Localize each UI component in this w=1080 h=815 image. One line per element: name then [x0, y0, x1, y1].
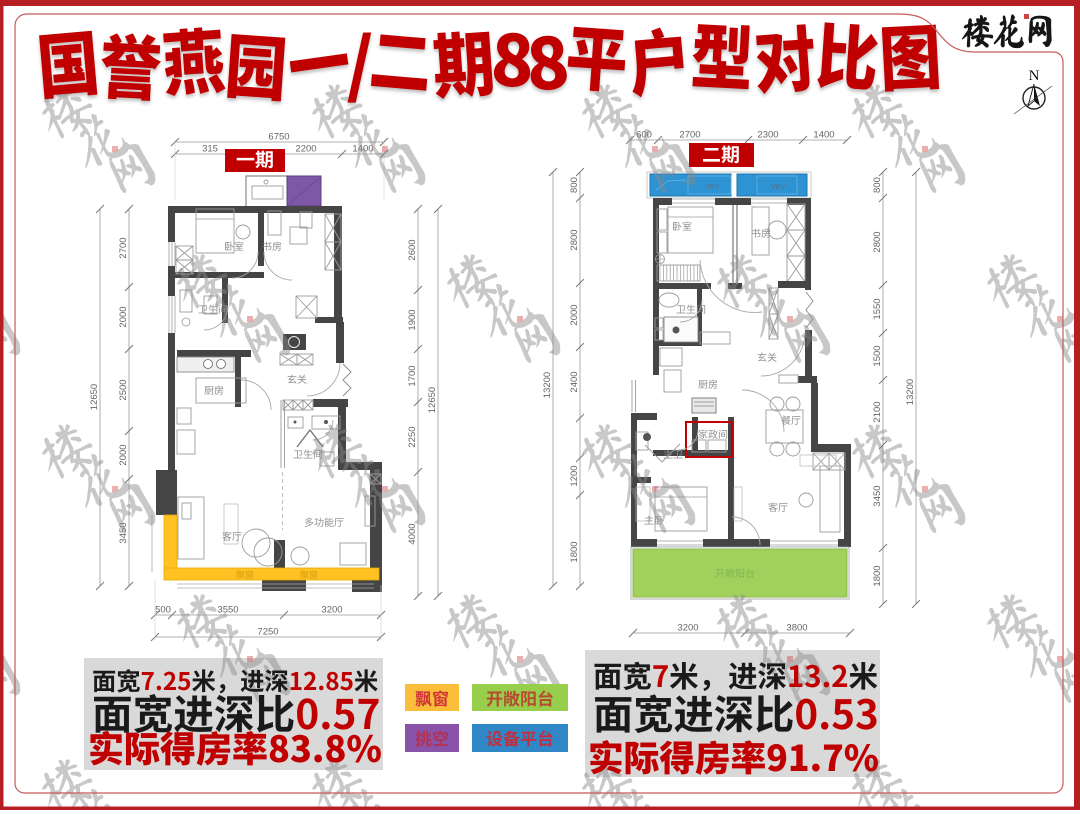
svg-text:12650: 12650: [89, 384, 100, 410]
svg-text:1500: 1500: [872, 345, 883, 366]
svg-text:1200: 1200: [569, 465, 580, 486]
svg-text:12650: 12650: [427, 387, 438, 413]
svg-text:800: 800: [872, 177, 883, 193]
svg-text:2700: 2700: [679, 130, 700, 141]
svg-text:800: 800: [569, 177, 580, 193]
svg-text:1700: 1700: [407, 365, 418, 386]
svg-text:2200: 2200: [295, 144, 316, 155]
svg-text:500: 500: [155, 605, 171, 616]
svg-text:2800: 2800: [872, 231, 883, 252]
svg-text:7250: 7250: [257, 627, 278, 638]
svg-text:3450: 3450: [872, 485, 883, 506]
svg-text:VRV: VRV: [705, 184, 720, 191]
svg-text:13200: 13200: [905, 379, 916, 405]
svg-text:1900: 1900: [407, 309, 418, 330]
svg-text:1800: 1800: [872, 565, 883, 586]
svg-text:13200: 13200: [542, 372, 553, 398]
svg-text:2000: 2000: [569, 304, 580, 325]
svg-text:1550: 1550: [872, 298, 883, 319]
svg-text:1400: 1400: [813, 130, 834, 141]
svg-text:3550: 3550: [217, 605, 238, 616]
svg-text:6750: 6750: [268, 132, 289, 143]
svg-text:1800: 1800: [569, 541, 580, 562]
svg-text:315: 315: [202, 144, 218, 155]
svg-text:4000: 4000: [407, 523, 418, 544]
svg-text:3800: 3800: [786, 623, 807, 634]
svg-text:2000: 2000: [118, 444, 129, 465]
svg-text:N: N: [1029, 68, 1040, 84]
svg-text:2100: 2100: [872, 401, 883, 422]
svg-text:2800: 2800: [569, 229, 580, 250]
svg-text:2700: 2700: [118, 237, 129, 258]
svg-text:2500: 2500: [118, 379, 129, 400]
svg-text:3200: 3200: [677, 623, 698, 634]
svg-text:2000: 2000: [118, 306, 129, 327]
svg-text:2300: 2300: [757, 130, 778, 141]
svg-text:2250: 2250: [407, 426, 418, 447]
svg-text:2400: 2400: [569, 371, 580, 392]
svg-text:VRV: VRV: [771, 184, 786, 191]
svg-text:2600: 2600: [407, 239, 418, 260]
svg-text:3200: 3200: [321, 605, 342, 616]
